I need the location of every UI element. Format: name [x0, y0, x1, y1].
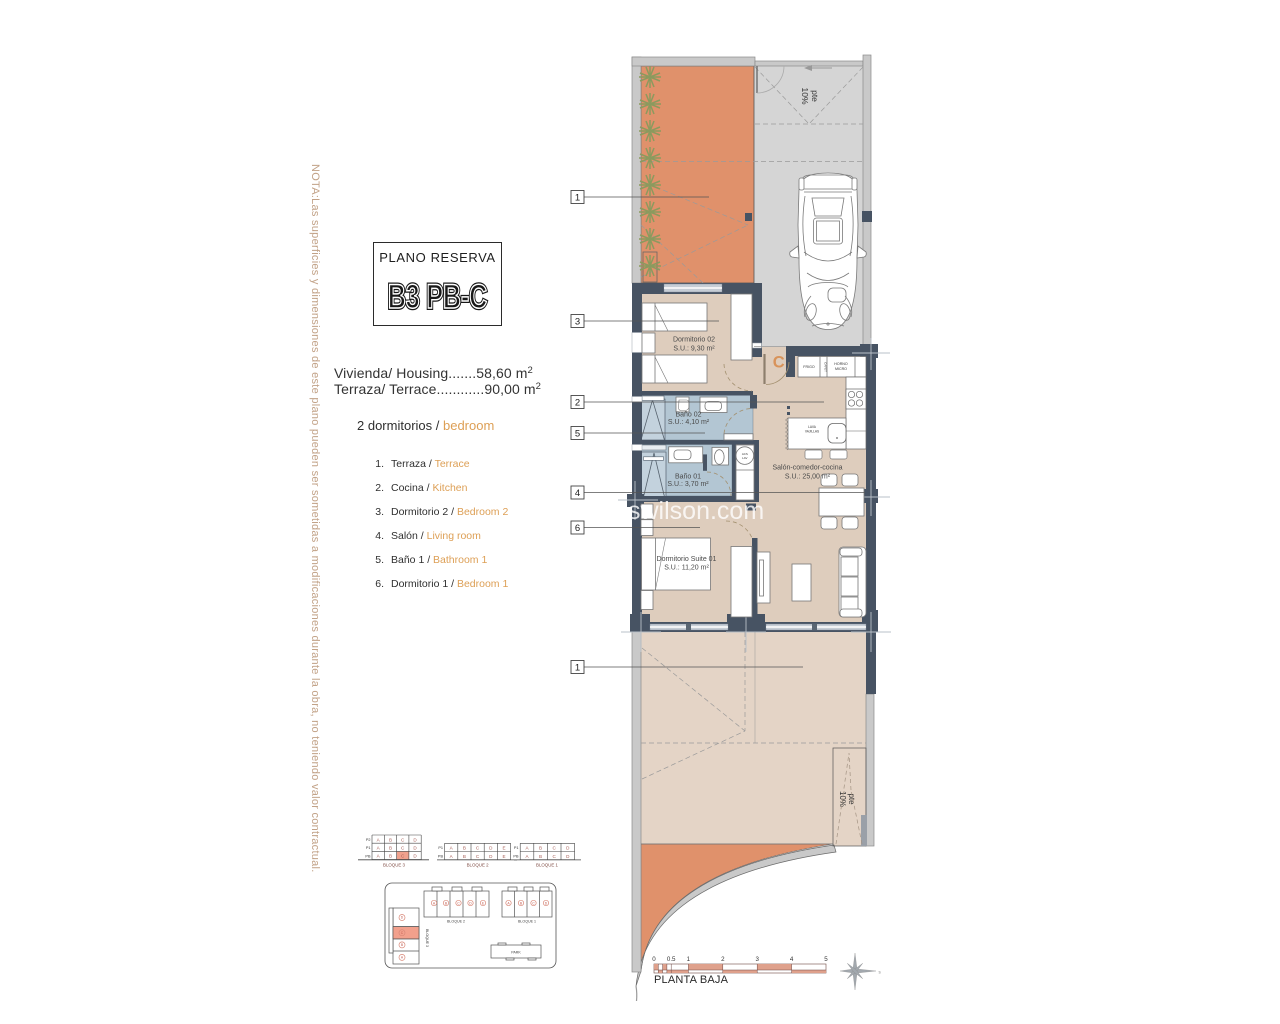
svg-text:Baño 01: Baño 01	[675, 473, 701, 480]
svg-text:B: B	[389, 837, 392, 842]
svg-text:FRIGO: FRIGO	[803, 365, 815, 369]
svg-text:0.5: 0.5	[667, 956, 676, 963]
svg-text:PLANTA BAJA: PLANTA BAJA	[654, 974, 729, 986]
svg-text:10%: 10%	[800, 87, 810, 104]
svg-text:D: D	[413, 837, 417, 842]
svg-text:BLOQUE 1: BLOQUE 1	[518, 920, 536, 924]
svg-text:LAV: LAV	[742, 456, 747, 460]
svg-text:BLOQUE 2: BLOQUE 2	[467, 863, 490, 868]
svg-text:4: 4	[790, 956, 794, 963]
svg-text:S.U.: 25,00 m²: S.U.: 25,00 m²	[785, 474, 831, 481]
svg-text:C: C	[476, 854, 480, 859]
svg-text:C: C	[401, 846, 405, 851]
svg-text:4: 4	[575, 488, 580, 499]
svg-text:B: B	[389, 854, 392, 859]
svg-text:C: C	[553, 846, 557, 851]
svg-text:B: B	[539, 846, 542, 851]
svg-text:pte: pte	[847, 793, 856, 805]
svg-text:1: 1	[575, 663, 580, 674]
svg-text:Baño 02: Baño 02	[675, 411, 701, 418]
svg-text:PARK: PARK	[511, 951, 521, 955]
svg-text:A: A	[377, 837, 381, 842]
svg-text:5: 5	[575, 429, 580, 440]
svg-text:pte: pte	[810, 90, 820, 102]
svg-text:D: D	[489, 846, 493, 851]
svg-text:A: A	[450, 846, 454, 851]
svg-text:Dormitorio Suite 01: Dormitorio Suite 01	[657, 556, 717, 563]
svg-text:VAJILLAS: VAJILLAS	[805, 430, 819, 434]
svg-text:S.U.: 4,10 m²: S.U.: 4,10 m²	[668, 419, 710, 426]
svg-text:D: D	[566, 846, 570, 851]
svg-text:A: A	[450, 854, 454, 859]
svg-text:PB: PB	[513, 854, 519, 858]
svg-text:3: 3	[755, 956, 759, 963]
svg-text:A: A	[377, 854, 381, 859]
svg-text:A: A	[525, 854, 529, 859]
svg-text:1: 1	[687, 956, 691, 963]
svg-text:Salón-comedor-cocina: Salón-comedor-cocina	[772, 465, 842, 472]
svg-text:CAFET: CAFET	[824, 362, 828, 372]
svg-text:D: D	[566, 854, 570, 859]
svg-text:P1: P1	[438, 846, 443, 850]
svg-text:B: B	[389, 846, 392, 851]
svg-text:1: 1	[575, 193, 580, 204]
svg-text:BLOQUE 2: BLOQUE 2	[447, 920, 465, 924]
svg-text:swilson.com: swilson.com	[628, 497, 764, 525]
svg-text:B: B	[463, 854, 466, 859]
svg-text:P1: P1	[366, 846, 371, 850]
svg-text:s: s	[879, 970, 882, 975]
svg-text:BLOQUE 3: BLOQUE 3	[425, 929, 429, 947]
svg-text:E: E	[502, 846, 505, 851]
svg-text:PB: PB	[365, 854, 371, 858]
svg-text:0: 0	[652, 956, 656, 963]
svg-text:LAVA: LAVA	[808, 425, 817, 429]
svg-text:C: C	[476, 846, 480, 851]
svg-text:A: A	[525, 846, 529, 851]
svg-text:C: C	[773, 354, 785, 372]
svg-text:HORNO: HORNO	[834, 362, 848, 366]
svg-text:A: A	[377, 846, 381, 851]
svg-text:BLOQUE 1: BLOQUE 1	[536, 863, 559, 868]
svg-text:S.U.: 9,30 m²: S.U.: 9,30 m²	[673, 346, 715, 353]
svg-text:P2: P2	[366, 838, 371, 842]
svg-text:C: C	[401, 837, 405, 842]
svg-text:5: 5	[824, 956, 828, 963]
svg-text:D: D	[413, 854, 417, 859]
svg-text:S.U.: 3,70 m²: S.U.: 3,70 m²	[667, 481, 709, 488]
svg-text:3: 3	[575, 317, 580, 328]
svg-text:2: 2	[721, 956, 725, 963]
svg-text:P1: P1	[514, 846, 519, 850]
svg-text:Dormitorio 02: Dormitorio 02	[673, 337, 715, 344]
svg-text:C: C	[553, 854, 557, 859]
svg-text:MICRO: MICRO	[835, 367, 847, 371]
svg-text:E: E	[502, 854, 505, 859]
svg-text:PB: PB	[438, 854, 444, 858]
svg-text:2: 2	[575, 398, 580, 409]
svg-text:D: D	[489, 854, 493, 859]
svg-text:B: B	[463, 846, 466, 851]
svg-text:BLOQUE 3: BLOQUE 3	[383, 863, 406, 868]
svg-text:B: B	[539, 854, 542, 859]
svg-text:D: D	[413, 846, 417, 851]
svg-text:S.U.: 11,20 m²: S.U.: 11,20 m²	[664, 565, 709, 572]
svg-text:6: 6	[575, 523, 580, 534]
